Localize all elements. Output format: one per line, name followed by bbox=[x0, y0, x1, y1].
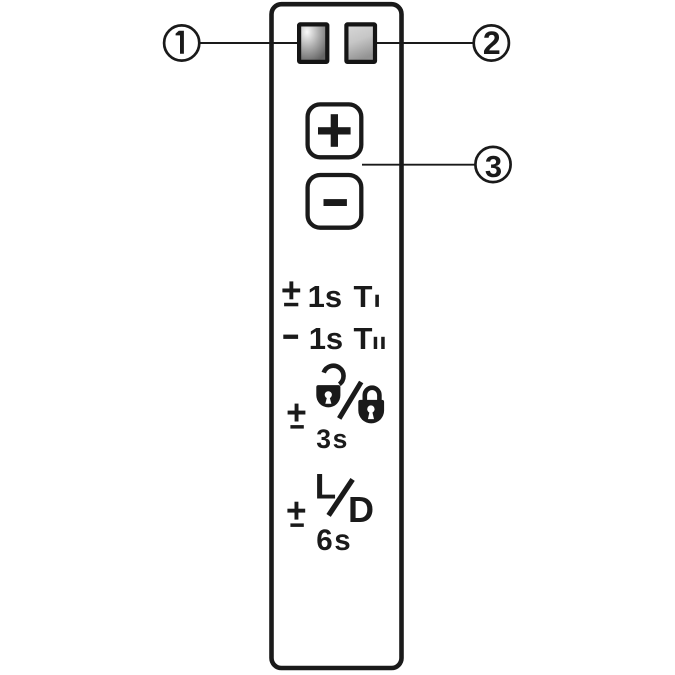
svg-text:2: 2 bbox=[483, 25, 501, 61]
svg-text:6s: 6s bbox=[316, 524, 352, 557]
svg-text:1s: 1s bbox=[309, 321, 343, 356]
svg-text:3: 3 bbox=[485, 149, 502, 184]
svg-text:3s: 3s bbox=[316, 424, 349, 454]
svg-text:L: L bbox=[315, 467, 336, 506]
svg-text:T: T bbox=[354, 321, 373, 356]
svg-text:1s: 1s bbox=[308, 279, 342, 314]
svg-text:T: T bbox=[354, 279, 373, 314]
